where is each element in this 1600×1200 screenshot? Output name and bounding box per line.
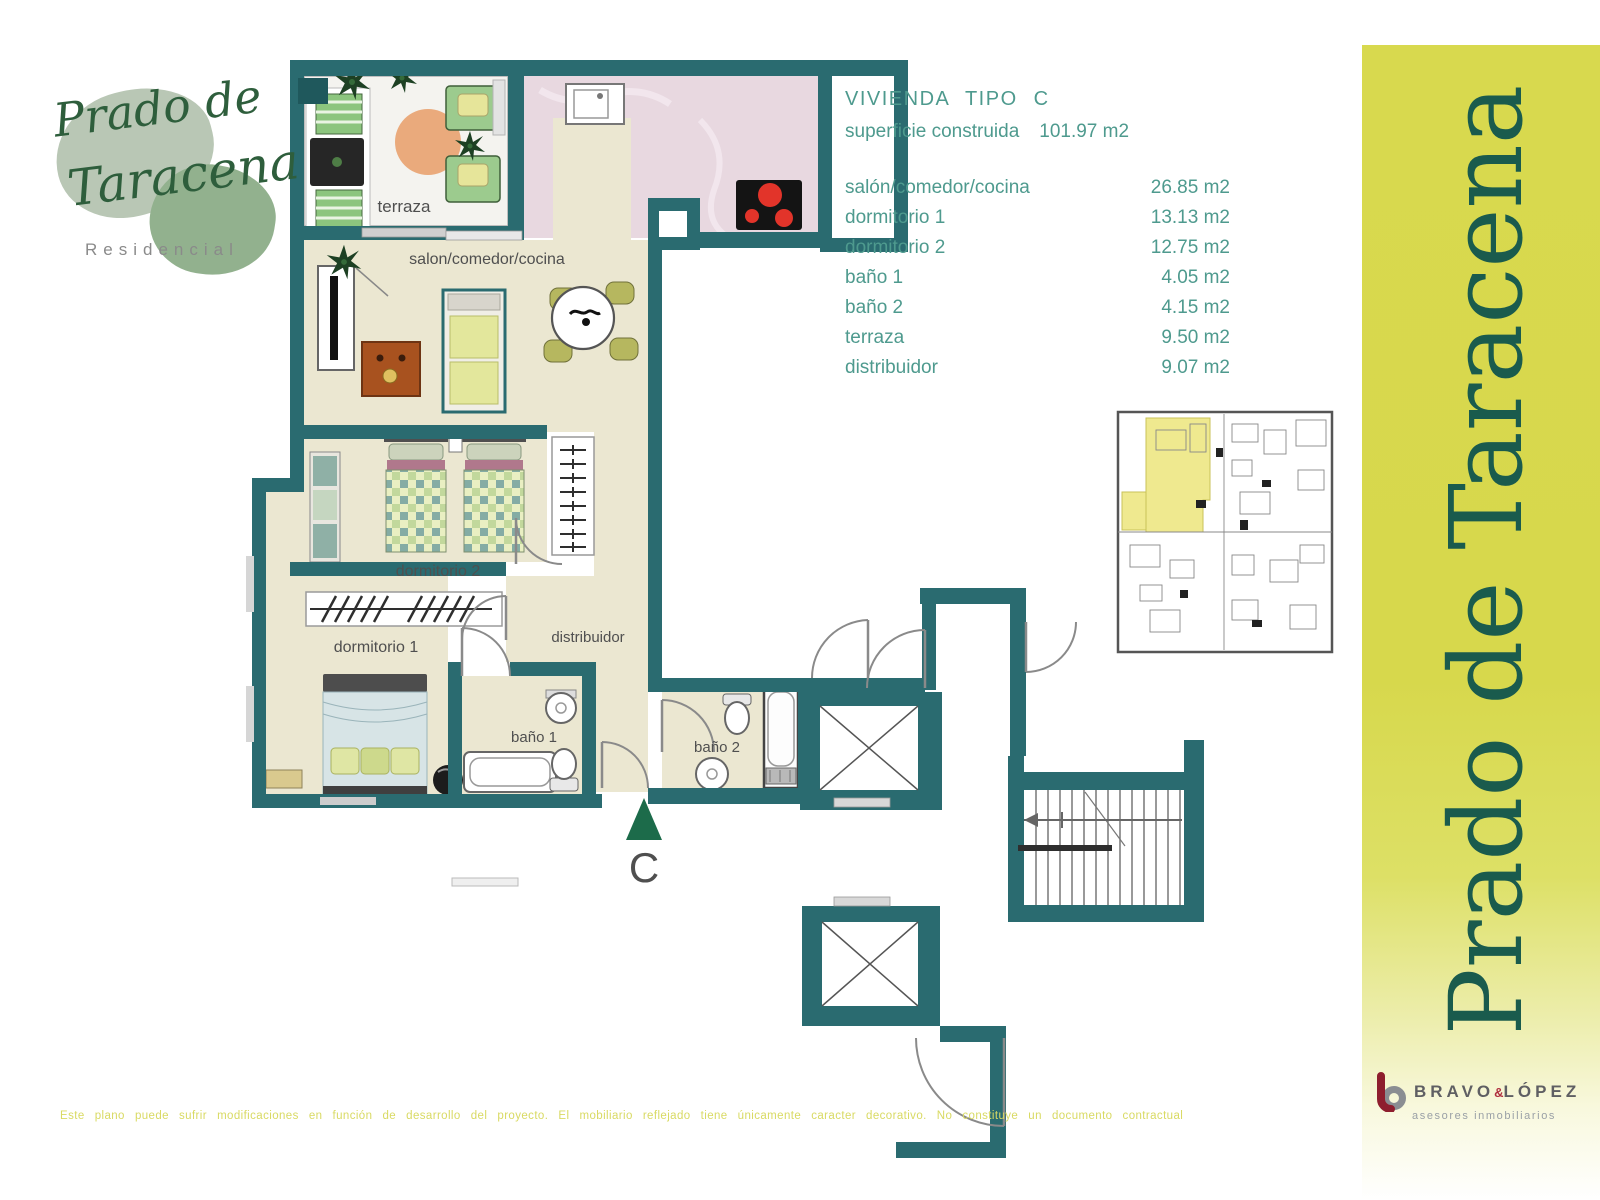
area-row-label: dormitorio 2 xyxy=(845,237,945,259)
brochure-page: C terraza salon/comedor/cocina dormitori… xyxy=(0,0,1600,1200)
area-row-label: salón/comedor/cocina xyxy=(845,177,1030,199)
area-row-label: baño 2 xyxy=(845,297,903,319)
logo-subtitle: Residencial xyxy=(85,240,239,260)
area-row-value: 9.07 m2 xyxy=(1140,357,1230,379)
area-row: dormitorio 1 13.13 m2 xyxy=(845,207,1230,229)
area-row-value: 13.13 m2 xyxy=(1140,207,1230,229)
entrance-triangle-icon xyxy=(626,798,662,840)
agency-logo: BRAVO&LÓPEZ asesores inmobiliarios xyxy=(1372,1072,1597,1122)
room-label-dormitorio2: dormitorio 2 xyxy=(396,563,481,580)
side-banner-title: Prado de Taracena xyxy=(1412,40,1562,1080)
area-row-label: distribuidor xyxy=(845,357,938,379)
area-row: dormitorio 2 12.75 m2 xyxy=(845,237,1230,259)
area-row: baño 2 4.15 m2 xyxy=(845,297,1230,319)
area-row: terraza 9.50 m2 xyxy=(845,327,1230,349)
agency-name: BRAVO&LÓPEZ xyxy=(1414,1082,1580,1101)
area-row-value: 12.75 m2 xyxy=(1140,237,1230,259)
entrance-marker: C xyxy=(626,798,662,891)
area-row-label: dormitorio 1 xyxy=(845,207,945,229)
logo-title-line1: Prado de xyxy=(51,72,264,143)
unit-info-title: VIVIENDA TIPO C xyxy=(845,88,1230,111)
area-row-label: baño 1 xyxy=(845,267,903,289)
area-row-value: 4.05 m2 xyxy=(1140,267,1230,289)
area-row: salón/comedor/cocina 26.85 m2 xyxy=(845,177,1230,199)
area-row-value: 9.50 m2 xyxy=(1140,327,1230,349)
brand-logo: Prado de Taracena Residencial xyxy=(25,55,305,285)
surface-label: superficie construida xyxy=(845,121,1019,143)
agency-b-icon xyxy=(1372,1072,1408,1112)
agency-tagline: asesores inmobiliarios xyxy=(1412,1110,1597,1122)
area-row-value: 4.15 m2 xyxy=(1140,297,1230,319)
room-label-bano1: baño 1 xyxy=(511,729,557,746)
closet-hangers xyxy=(552,437,594,555)
surface-value: 101.97 m2 xyxy=(1039,121,1129,143)
area-row-value: 26.85 m2 xyxy=(1140,177,1230,199)
unit-surface-line: superficie construida 101.97 m2 xyxy=(845,121,1230,143)
unit-area-table: salón/comedor/cocina 26.85 m2 dormitorio… xyxy=(845,177,1230,379)
room-label-bano2: baño 2 xyxy=(694,739,740,756)
area-row-label: terraza xyxy=(845,327,904,349)
room-label-dormitorio1: dormitorio 1 xyxy=(334,639,419,656)
area-row: distribuidor 9.07 m2 xyxy=(845,357,1230,379)
unit-info-block: VIVIENDA TIPO C superficie construida 10… xyxy=(845,88,1230,379)
entrance-letter: C xyxy=(629,844,659,891)
room-label-terraza: terraza xyxy=(378,197,431,216)
elevator-shafts xyxy=(820,706,918,1006)
room-label-salon: salon/comedor/cocina xyxy=(409,251,565,268)
stairs xyxy=(1018,790,1182,905)
room-label-distribuidor: distribuidor xyxy=(551,629,624,646)
area-row: baño 1 4.05 m2 xyxy=(845,267,1230,289)
mini-overview-plan xyxy=(1118,412,1332,652)
wardrobe-hatch xyxy=(306,592,502,626)
disclaimer-text: Este plano puede sufrir modificaciones e… xyxy=(60,1110,1310,1122)
